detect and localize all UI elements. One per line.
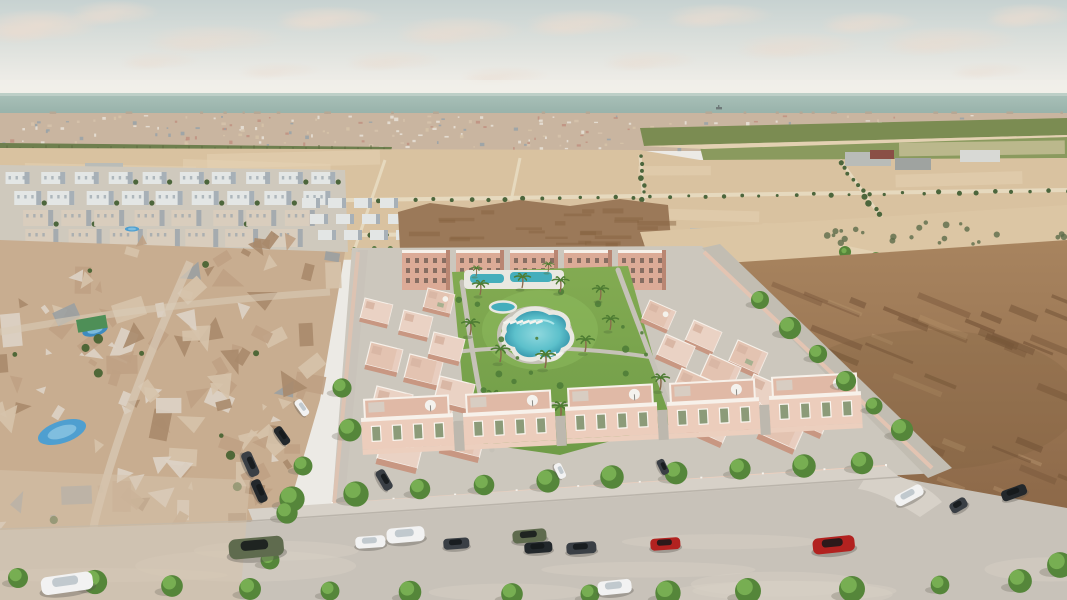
scrub xyxy=(861,231,864,234)
mesh-roof xyxy=(299,323,314,347)
cloud xyxy=(985,13,1039,30)
shrub xyxy=(535,337,538,340)
estate-window xyxy=(195,195,197,199)
town-speck xyxy=(37,121,41,123)
estate-window xyxy=(209,195,211,199)
kids-pool xyxy=(490,302,516,313)
distant-tree xyxy=(639,154,643,158)
skyline-nub xyxy=(433,112,439,115)
apartment-window xyxy=(595,258,599,263)
mesh-roof xyxy=(182,330,200,341)
town-speck xyxy=(360,135,364,137)
town-speck xyxy=(241,129,245,132)
town-speck xyxy=(246,135,249,137)
tree-canopy-light xyxy=(9,569,21,581)
town-speck xyxy=(223,135,225,136)
apartment-window xyxy=(649,258,653,263)
shuttered-window xyxy=(575,415,585,430)
tree-canopy-light xyxy=(1010,570,1025,585)
estate-window xyxy=(202,233,204,237)
town-speck xyxy=(93,119,95,121)
town-speck xyxy=(518,141,521,144)
town-speck xyxy=(629,123,631,125)
scrub xyxy=(832,228,838,234)
distant-tree xyxy=(877,212,882,217)
estate-window xyxy=(313,195,315,199)
distant-tree xyxy=(865,200,872,207)
estate-window xyxy=(97,195,99,199)
distant-tree xyxy=(640,162,644,166)
estate-window xyxy=(202,195,204,199)
distant-tree xyxy=(540,197,544,201)
sky-layer xyxy=(0,0,1067,96)
mound-streak xyxy=(545,237,567,239)
existing-pool-light xyxy=(128,228,136,231)
tree-canopy-light xyxy=(810,346,821,357)
town-speck xyxy=(230,124,233,126)
tree-canopy-light xyxy=(752,292,763,303)
skyline-nub xyxy=(831,112,837,115)
estate-window xyxy=(153,176,155,180)
estate-window xyxy=(160,176,162,180)
apartment-roofline xyxy=(510,250,558,253)
driveway xyxy=(453,421,465,451)
distant-tree xyxy=(450,198,454,202)
estate-window xyxy=(195,233,197,237)
town-speck xyxy=(394,118,398,122)
mound-streak xyxy=(637,221,676,226)
town-speck xyxy=(412,140,415,142)
distant-tree xyxy=(874,207,878,211)
pergola xyxy=(470,397,487,408)
estate-shadow xyxy=(36,191,41,205)
distant-tree xyxy=(579,196,582,199)
town-speck xyxy=(168,134,171,137)
town-speck xyxy=(539,120,543,122)
neighborhood-tree xyxy=(93,334,103,344)
mound-streak xyxy=(615,217,643,220)
town-speck xyxy=(303,142,305,145)
tree-canopy-light xyxy=(602,466,617,481)
mound-streak xyxy=(637,226,658,230)
town-speck xyxy=(746,122,749,125)
tree-canopy-light xyxy=(892,420,906,434)
neighborhood-tree xyxy=(253,350,259,356)
tree-canopy-light xyxy=(780,318,794,332)
town-speck xyxy=(580,135,583,136)
town-speck xyxy=(323,130,325,132)
apartment-window xyxy=(586,258,590,263)
distant-tree xyxy=(843,166,847,170)
tree-canopy-light xyxy=(278,503,291,516)
mesh-roof xyxy=(106,355,137,374)
apartment-window xyxy=(649,268,653,273)
town-speck xyxy=(418,134,422,136)
estate-window xyxy=(152,214,154,218)
town-speck xyxy=(133,121,137,125)
skyline-nub xyxy=(800,112,803,115)
estate-window xyxy=(328,176,330,180)
tree-canopy-light xyxy=(240,579,254,593)
estate-window xyxy=(72,233,74,237)
town-speck xyxy=(285,133,288,135)
estate-shadow xyxy=(60,172,65,184)
estate-window xyxy=(249,214,251,218)
town-speck xyxy=(75,141,77,144)
distant-tree xyxy=(596,196,599,199)
estate-shadow xyxy=(330,172,335,184)
distant-tree xyxy=(722,194,726,198)
scrub xyxy=(832,233,836,237)
town-speck xyxy=(567,121,571,123)
skyline-nub xyxy=(254,112,261,115)
shuttered-window xyxy=(371,426,381,441)
distant-tree xyxy=(852,178,856,182)
distant-tree xyxy=(648,195,652,199)
estate-window xyxy=(92,176,94,180)
mound-streak xyxy=(603,208,624,213)
estate-shadow xyxy=(128,172,133,184)
town-speck xyxy=(291,120,293,122)
distant-tree xyxy=(901,191,904,194)
estate-window xyxy=(119,176,121,180)
cloud xyxy=(665,13,731,30)
scrub xyxy=(964,226,969,231)
render-scene xyxy=(0,0,1067,600)
distant-ship xyxy=(716,107,722,109)
apartment-window xyxy=(604,258,608,263)
estate-window xyxy=(174,214,176,218)
front-villa xyxy=(666,379,771,440)
skyline-nub xyxy=(586,112,590,115)
distant-tree xyxy=(740,194,744,198)
estate-shadow xyxy=(94,172,99,184)
estate-window xyxy=(104,195,106,199)
town-speck xyxy=(66,121,69,122)
skyline-nub xyxy=(223,112,226,115)
mound-streak xyxy=(578,241,591,244)
apartment-window xyxy=(406,258,410,263)
shrub xyxy=(640,331,643,334)
palm-shadow xyxy=(463,335,473,339)
distant-tree xyxy=(974,190,979,195)
scrub xyxy=(916,225,922,231)
town-speck xyxy=(754,121,758,122)
apartment-window xyxy=(496,258,500,263)
town-speck xyxy=(460,135,463,139)
apartment-window xyxy=(415,258,419,263)
cloud xyxy=(735,42,813,60)
town-speck xyxy=(114,117,116,120)
town-speck xyxy=(553,116,555,117)
estate-tree xyxy=(149,200,154,205)
town-speck xyxy=(31,122,34,126)
estate-window xyxy=(31,195,33,199)
scrub xyxy=(824,232,831,239)
neighborhood-tree xyxy=(12,352,17,357)
town-speck xyxy=(255,135,258,139)
estate-window xyxy=(181,214,183,218)
distant-tree xyxy=(639,197,644,202)
hamlet-shadow xyxy=(350,214,354,224)
estate-window xyxy=(145,214,147,218)
town-speck xyxy=(427,121,431,123)
town-speck xyxy=(776,121,778,123)
estate-window xyxy=(228,233,230,237)
shuttered-window xyxy=(740,407,750,422)
hamlet-shadow xyxy=(376,214,380,224)
scrub xyxy=(924,220,928,224)
mesh-roof xyxy=(156,398,181,413)
estate-window xyxy=(57,195,59,199)
estate-window xyxy=(120,233,122,237)
estate-tree xyxy=(133,179,138,184)
pergola xyxy=(674,386,691,397)
town-speck xyxy=(157,127,159,130)
palm-shadow xyxy=(604,330,613,333)
town-speck xyxy=(607,139,611,141)
distant-tree xyxy=(431,197,435,201)
distant-tree xyxy=(922,192,925,195)
estate-shadow xyxy=(196,210,201,226)
estate-shadow xyxy=(238,210,243,226)
estate-window xyxy=(85,176,87,180)
estate-window xyxy=(79,233,81,237)
town-speck xyxy=(224,128,226,130)
tree-canopy-light xyxy=(932,576,944,588)
estate-window xyxy=(17,195,19,199)
palm-shadow xyxy=(471,276,477,278)
estate-window xyxy=(166,195,168,199)
distant-tree xyxy=(668,195,672,199)
town-speck xyxy=(893,117,895,119)
road-wash xyxy=(541,562,755,578)
town-speck xyxy=(186,139,188,141)
distant-tree xyxy=(993,189,998,194)
town-speck xyxy=(558,135,561,138)
town-speck xyxy=(441,118,445,120)
driveway xyxy=(555,416,567,446)
estate-window xyxy=(282,176,284,180)
town-speck xyxy=(290,123,293,125)
skyline-nub xyxy=(776,112,779,115)
estate-window xyxy=(132,195,134,199)
tree-canopy-light xyxy=(731,459,744,472)
apartment-window xyxy=(532,258,536,263)
apartment-window xyxy=(433,268,437,273)
shrub xyxy=(623,370,629,376)
skyline-nub xyxy=(277,112,281,115)
town-speck xyxy=(346,127,349,130)
town-speck xyxy=(444,136,448,138)
town-speck xyxy=(10,139,14,142)
neighborhood-tree xyxy=(88,268,93,273)
town-speck xyxy=(387,121,390,124)
distant-tree xyxy=(1046,188,1051,193)
town-speck xyxy=(47,124,51,127)
apartment-window xyxy=(415,268,419,273)
pergola xyxy=(776,380,793,391)
scrub xyxy=(994,231,1000,237)
mound-streak xyxy=(614,220,638,223)
mound-streak xyxy=(595,236,632,239)
apartment-window xyxy=(658,278,662,283)
town-speck xyxy=(181,132,185,136)
estate-window xyxy=(295,214,297,218)
shuttered-window xyxy=(434,423,444,438)
estate-window xyxy=(125,195,127,199)
shuttered-window xyxy=(698,409,708,424)
estate-window xyxy=(24,195,26,199)
town-speck xyxy=(586,142,588,143)
apartment-window xyxy=(622,258,626,263)
estate-window xyxy=(274,195,276,199)
skyline-nub xyxy=(542,112,545,115)
apartment-window xyxy=(406,278,410,283)
shuttered-window xyxy=(638,412,648,427)
estate-window xyxy=(263,176,265,180)
town-speck xyxy=(528,130,532,131)
scrub xyxy=(971,242,975,246)
town-speck xyxy=(480,116,483,119)
distant-tree xyxy=(1009,190,1013,194)
town-speck xyxy=(605,144,608,146)
estate-window xyxy=(44,176,46,180)
estate-window xyxy=(288,214,290,218)
estate-window xyxy=(230,214,232,218)
hamlet-shadow xyxy=(384,230,388,240)
distant-tree xyxy=(936,189,941,194)
tree-canopy-light xyxy=(340,419,354,433)
shuttered-window xyxy=(779,404,789,419)
scrub xyxy=(839,229,843,233)
estate-window xyxy=(223,214,225,218)
estate-shadow xyxy=(178,191,183,205)
distant-tree xyxy=(470,197,475,202)
tree-canopy-light xyxy=(322,582,334,594)
town-speck xyxy=(94,134,96,137)
town-speck xyxy=(491,125,494,127)
town-speck xyxy=(358,122,362,124)
skyline-nub xyxy=(391,112,394,115)
distant-tree xyxy=(845,172,849,176)
shrub xyxy=(516,356,520,360)
town-speck xyxy=(289,131,292,134)
palm-shadow xyxy=(543,272,549,274)
town-speck xyxy=(847,115,849,117)
hamlet-shadow xyxy=(342,198,346,208)
warehouse xyxy=(870,150,894,159)
town-speck xyxy=(454,126,456,128)
town-speck xyxy=(284,142,286,143)
estate-window xyxy=(242,233,244,237)
skyline-nub xyxy=(1006,112,1013,115)
sea-sparkle xyxy=(0,93,1067,96)
estate-shadow xyxy=(249,191,254,205)
cloud xyxy=(880,37,964,57)
estate-tree xyxy=(114,200,119,205)
town-speck xyxy=(257,119,260,122)
shrub xyxy=(481,387,487,393)
shuttered-window xyxy=(719,408,729,423)
cloud xyxy=(70,10,124,27)
tree-canopy-light xyxy=(334,379,346,391)
estate-window xyxy=(296,176,298,180)
town-speck xyxy=(146,126,150,127)
estate-shadow xyxy=(48,210,53,226)
town-speck xyxy=(866,120,870,121)
shuttered-window xyxy=(821,402,831,417)
town-speck xyxy=(396,130,399,132)
hamlet-shadow xyxy=(316,198,320,208)
estate-shadow xyxy=(160,210,165,226)
estate-window xyxy=(26,214,28,218)
estate-window xyxy=(86,233,88,237)
distant-tree xyxy=(632,196,636,200)
skyline-nub xyxy=(705,112,712,115)
estate-window xyxy=(314,176,316,180)
tree-canopy-light xyxy=(163,576,176,589)
town-speck xyxy=(669,123,671,125)
scrub xyxy=(853,227,859,233)
distant-tree xyxy=(861,194,867,200)
estate-window xyxy=(40,214,42,218)
town-speck xyxy=(594,122,598,123)
driveway xyxy=(657,410,669,440)
town-speck xyxy=(195,136,197,139)
estate-shadow xyxy=(175,229,180,247)
town-speck xyxy=(427,116,431,118)
town-speck xyxy=(369,122,372,123)
aerial-render-image xyxy=(0,0,1067,600)
estate-window xyxy=(112,176,114,180)
scrub xyxy=(890,234,896,240)
apartment-roofline xyxy=(402,250,450,253)
tree-canopy-light xyxy=(538,470,552,484)
shuttered-window xyxy=(536,418,546,433)
mound-streak xyxy=(529,230,545,233)
distant-tree xyxy=(642,183,646,187)
hamlet-shadow xyxy=(324,214,328,224)
estate-shadow xyxy=(199,172,204,184)
distant-tree xyxy=(883,193,886,196)
shuttered-window xyxy=(392,425,402,440)
town-speck xyxy=(315,119,317,121)
palm-shadow xyxy=(594,300,603,303)
tree-canopy-light xyxy=(503,584,516,597)
town-speck xyxy=(599,147,602,149)
estate-window xyxy=(183,176,185,180)
town-speck xyxy=(458,116,460,117)
apartment-window xyxy=(424,278,428,283)
tree-canopy-light xyxy=(582,585,594,597)
estate-window xyxy=(267,195,269,199)
scrub xyxy=(842,236,848,242)
shrub xyxy=(622,346,629,353)
town-speck xyxy=(586,131,589,133)
town-speck xyxy=(334,141,336,143)
scrub xyxy=(1059,231,1065,237)
town-speck xyxy=(185,116,187,118)
apartment-window xyxy=(523,258,527,263)
tree-canopy-light xyxy=(345,482,361,498)
tree-canopy-light xyxy=(852,453,866,467)
scrub xyxy=(909,235,913,239)
scrub xyxy=(942,236,948,242)
estate-window xyxy=(126,176,128,180)
shuttered-window xyxy=(617,413,627,428)
scrub xyxy=(943,221,950,228)
